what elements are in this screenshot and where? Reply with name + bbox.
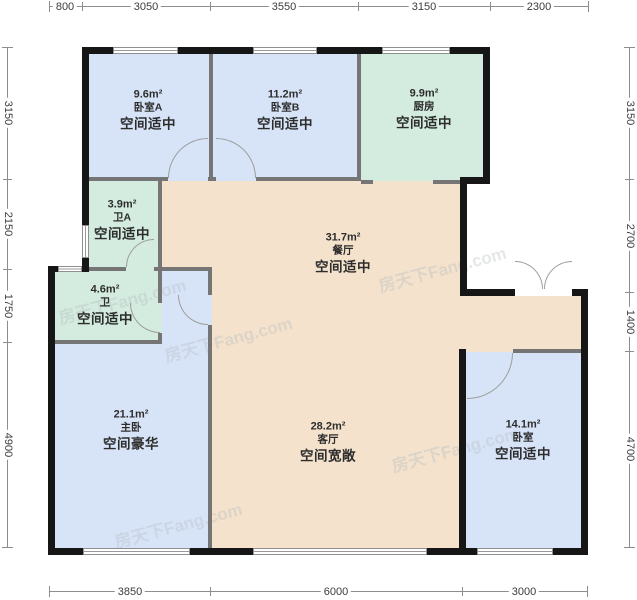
dim-tick [210, 587, 211, 596]
room-area: 21.1m² [103, 407, 159, 421]
room-name: 卧室A [120, 102, 176, 116]
dim-label-top: 3150 [409, 1, 439, 13]
dim-tick [82, 2, 83, 11]
dim-tick [49, 1, 50, 12]
wall-bedrooms-bottom-seg3 [256, 177, 357, 181]
dim-tick [2, 547, 13, 548]
outer-wall-notch-left [460, 177, 467, 296]
dim-tick [3, 179, 12, 180]
dim-label-right: 1400 [624, 307, 636, 337]
wall-vestibule-right-seg2 [208, 325, 212, 345]
window-bedroom-a [113, 47, 178, 54]
wall-kitchen-bottom-seg1 [361, 180, 373, 184]
room-label-bedroom-a: 9.6m² 卧室A 空间适中 [120, 87, 176, 132]
dim-label-left: 2150 [2, 209, 14, 239]
room-desc: 空间适中 [396, 114, 452, 132]
window-master [83, 548, 190, 555]
room-name: 卧室B [257, 102, 313, 116]
dim-tick [624, 547, 635, 548]
room-desc: 空间适中 [94, 225, 150, 243]
room-dining-floor [162, 181, 465, 271]
dim-tick [624, 47, 635, 48]
dim-tick [358, 2, 359, 11]
room-area: 14.1m² [495, 417, 551, 431]
room-name: 厨房 [396, 101, 452, 115]
room-desc: 空间适中 [257, 115, 313, 133]
wall-dining-vestibule [162, 267, 212, 271]
dim-tick [210, 2, 211, 11]
room-area: 9.6m² [120, 87, 176, 101]
room-area: 4.6m² [77, 282, 133, 296]
dim-tick [49, 586, 50, 597]
room-label-kitchen: 9.9m² 厨房 空间适中 [396, 86, 452, 131]
outer-wall-right-lower [581, 289, 588, 555]
dim-label-left: 4900 [2, 430, 14, 460]
dim-tick [625, 292, 634, 293]
wall-vestibule-right-seg1 [208, 271, 212, 295]
dim-label-right: 3150 [624, 98, 636, 128]
door-arc-entry-left [515, 261, 543, 289]
door-arc-entry-right [544, 261, 572, 289]
wall-bedrooms-bottom-seg2 [208, 177, 216, 181]
room-area: 9.9m² [396, 86, 452, 100]
dim-tick [462, 587, 463, 596]
window-bedroom [477, 548, 553, 555]
dim-label-top: 3550 [269, 1, 299, 13]
room-name: 卫 [77, 297, 133, 311]
dim-tick [3, 342, 12, 343]
window-bedroom-b [253, 47, 317, 54]
room-name: 卧室 [495, 432, 551, 446]
window-bath-a [82, 225, 89, 258]
dim-label-top: 3050 [131, 1, 161, 13]
dim-tick [625, 351, 634, 352]
room-name: 客厅 [300, 434, 356, 448]
dim-tick [587, 586, 588, 597]
dim-label-right: 2700 [624, 221, 636, 251]
entry-corridor-floor [465, 296, 584, 352]
room-desc: 空间豪华 [103, 435, 159, 453]
dim-tick [3, 269, 12, 270]
wall-bath-bottom [55, 340, 158, 344]
floor-plan: 房天下Fang.com 房天下Fang.com 房天下Fang.com 房天下F… [0, 0, 637, 600]
room-label-bedroom-b: 11.2m² 卧室B 空间适中 [257, 87, 313, 132]
room-desc: 空间适中 [495, 445, 551, 463]
wall-bedroom-top [513, 349, 584, 353]
window-kitchen [382, 47, 450, 54]
room-area: 11.2m² [257, 87, 313, 101]
wall-living-bedroom-divider [459, 349, 466, 555]
wall-bath-vestibule-seg1 [158, 271, 162, 303]
room-label-dining: 31.7m² 餐厅 空间适中 [315, 230, 371, 275]
wall-bedroom-a-b-divider [209, 47, 213, 178]
room-desc: 空间适中 [120, 115, 176, 133]
outer-wall-entry-left [460, 289, 515, 296]
dim-tick [625, 179, 634, 180]
dim-label-left: 3150 [2, 98, 14, 128]
dim-label-bottom: 3850 [115, 586, 145, 598]
room-living-floor [212, 271, 465, 548]
wall-bedroom-b-kitchen-divider [357, 47, 361, 181]
wall-kitchen-bottom-seg2 [433, 180, 460, 184]
wall-master-living-divider [208, 345, 212, 548]
window-step [58, 266, 82, 272]
dim-label-left: 1750 [2, 291, 14, 321]
dim-label-bottom: 3000 [509, 586, 539, 598]
room-area: 28.2m² [300, 419, 356, 433]
dim-label-right: 4700 [624, 434, 636, 464]
window-living [253, 548, 427, 555]
room-label-master: 21.1m² 主卧 空间豪华 [103, 407, 159, 452]
room-desc: 空间适中 [77, 310, 133, 328]
dim-label-top: 2300 [524, 1, 554, 13]
room-label-bedroom: 14.1m² 卧室 空间适中 [495, 417, 551, 462]
wall-bedrooms-bottom-seg1 [89, 177, 168, 181]
room-name: 卫A [94, 212, 150, 226]
room-desc: 空间宽敞 [300, 447, 356, 465]
dim-label-bottom: 6000 [321, 586, 351, 598]
room-label-bath-a: 3.9m² 卫A 空间适中 [94, 197, 150, 242]
wall-bath-vestibule-seg2 [158, 333, 162, 344]
dim-tick [2, 47, 13, 48]
dim-label-top: 800 [53, 1, 77, 13]
outer-wall-left-lower [48, 266, 55, 555]
dim-tick [588, 1, 589, 12]
room-desc: 空间适中 [315, 258, 371, 276]
outer-wall-kitchen-right [483, 47, 490, 184]
room-area: 31.7m² [315, 230, 371, 244]
room-label-living: 28.2m² 客厅 空间宽敞 [300, 419, 356, 464]
room-name: 餐厅 [315, 245, 371, 259]
dim-tick [490, 2, 491, 11]
wall-bath-a-bottom-seg1 [89, 267, 126, 271]
room-area: 3.9m² [94, 197, 150, 211]
room-name: 主卧 [103, 422, 159, 436]
wall-bath-a-right [158, 181, 162, 271]
room-label-bath: 4.6m² 卫 空间适中 [77, 282, 133, 327]
